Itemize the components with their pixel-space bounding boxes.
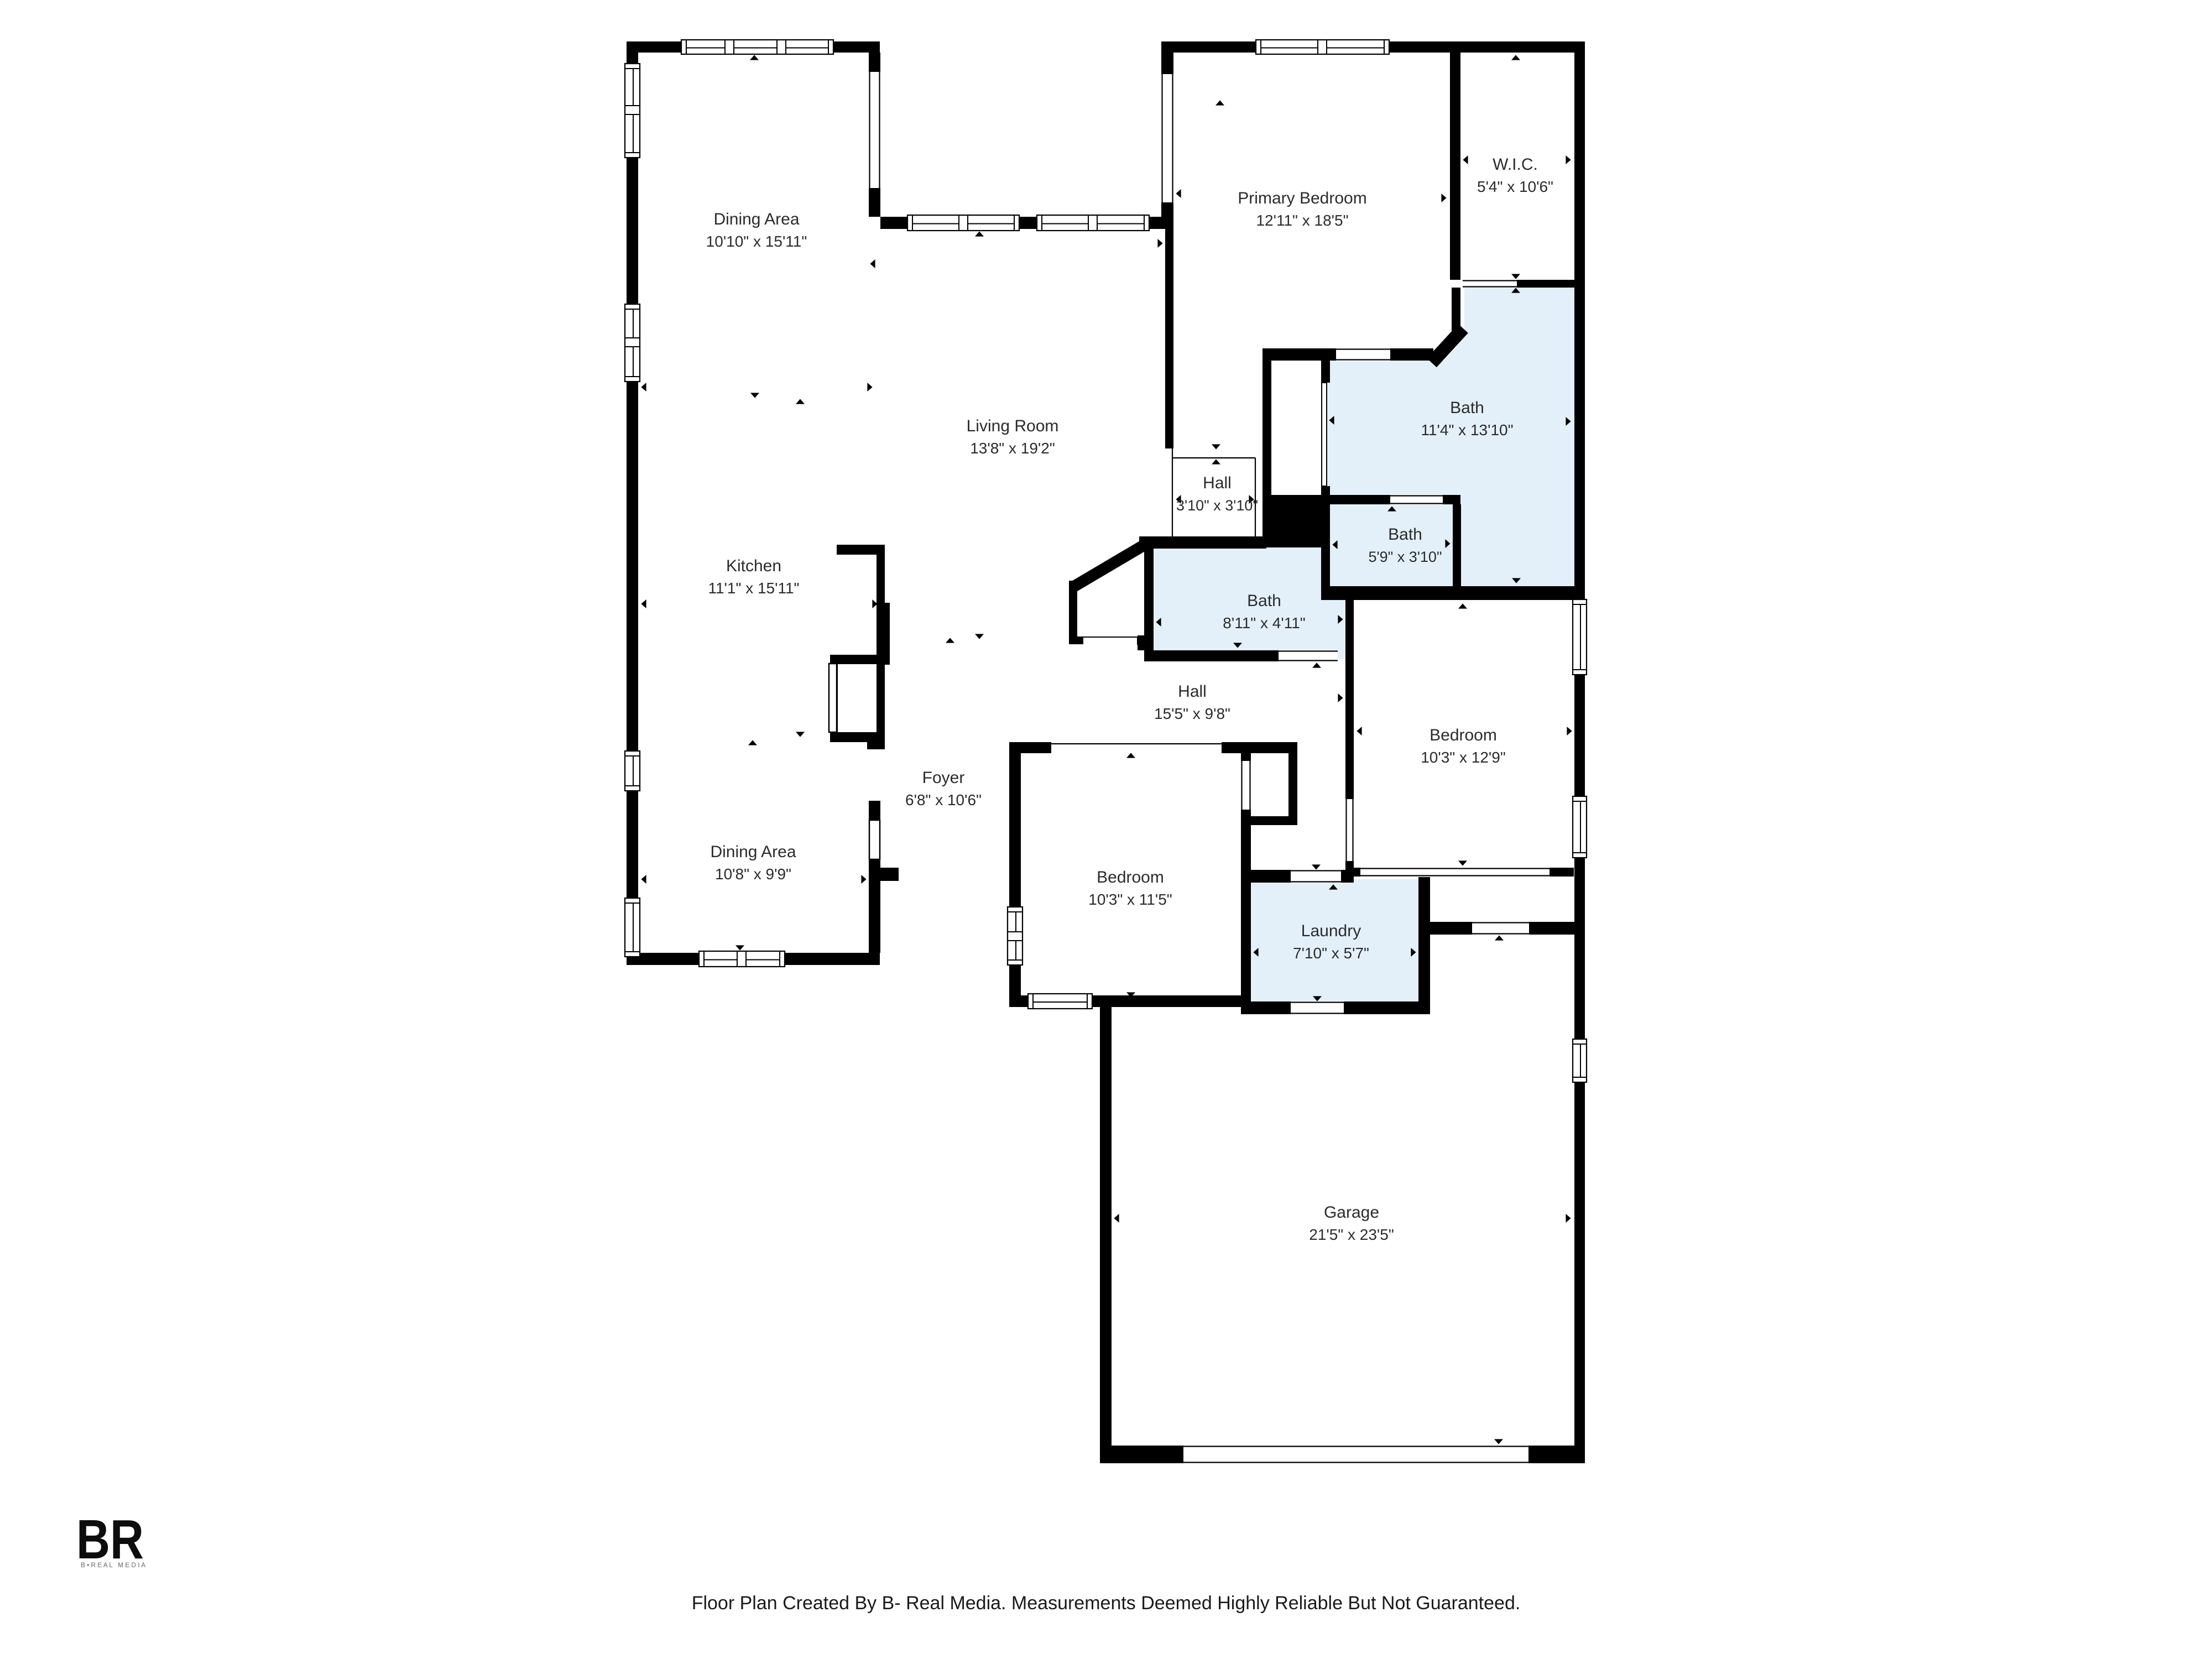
svg-text:Garage: Garage [1324,1203,1379,1222]
svg-text:Bedroom: Bedroom [1430,726,1497,744]
svg-text:12'11" x 18'5": 12'11" x 18'5" [1256,212,1348,229]
svg-text:5'9" x 3'10": 5'9" x 3'10" [1368,549,1442,565]
svg-text:Hall: Hall [1178,682,1207,701]
svg-text:10'3" x 11'5": 10'3" x 11'5" [1088,891,1172,908]
svg-text:Hall: Hall [1203,474,1232,492]
svg-text:21'5" x 23'5": 21'5" x 23'5" [1309,1226,1394,1243]
svg-text:15'5" x 9'8": 15'5" x 9'8" [1154,705,1230,722]
svg-text:Foyer: Foyer [922,769,965,787]
svg-text:W.I.C.: W.I.C. [1493,155,1538,174]
svg-text:Living Room: Living Room [967,417,1059,435]
svg-text:13'8" x 19'2": 13'8" x 19'2" [970,440,1055,457]
svg-text:B • R E A L M E D I A: B • R E A L M E D I A [81,1561,145,1569]
svg-text:Floor Plan Created By B- Real: Floor Plan Created By B- Real Media. Mea… [692,1593,1521,1614]
svg-text:Dining Area: Dining Area [710,843,796,861]
svg-text:3'10" x 3'10": 3'10" x 3'10" [1176,497,1258,514]
svg-text:Laundry: Laundry [1301,922,1361,940]
svg-text:10'8" x 9'9": 10'8" x 9'9" [715,865,791,883]
svg-text:6'8" x 10'6": 6'8" x 10'6" [905,791,982,808]
svg-text:11'4" x 13'10": 11'4" x 13'10" [1421,421,1513,439]
svg-text:Bath: Bath [1388,525,1422,544]
svg-text:11'1" x 15'11": 11'1" x 15'11" [708,580,800,597]
svg-text:10'3" x 12'9": 10'3" x 12'9" [1421,749,1506,766]
svg-text:Primary Bedroom: Primary Bedroom [1238,189,1366,207]
svg-text:Bath: Bath [1450,399,1484,417]
svg-text:Bedroom: Bedroom [1097,868,1164,886]
svg-text:Kitchen: Kitchen [726,557,781,575]
svg-text:Bath: Bath [1247,592,1281,610]
svg-text:8'11" x 4'11": 8'11" x 4'11" [1223,614,1305,632]
svg-text:7'10" x 5'7": 7'10" x 5'7" [1293,945,1369,962]
svg-text:10'10" x 15'11": 10'10" x 15'11" [706,233,807,250]
svg-text:Dining Area: Dining Area [713,210,799,228]
svg-text:5'4" x 10'6": 5'4" x 10'6" [1477,178,1553,195]
